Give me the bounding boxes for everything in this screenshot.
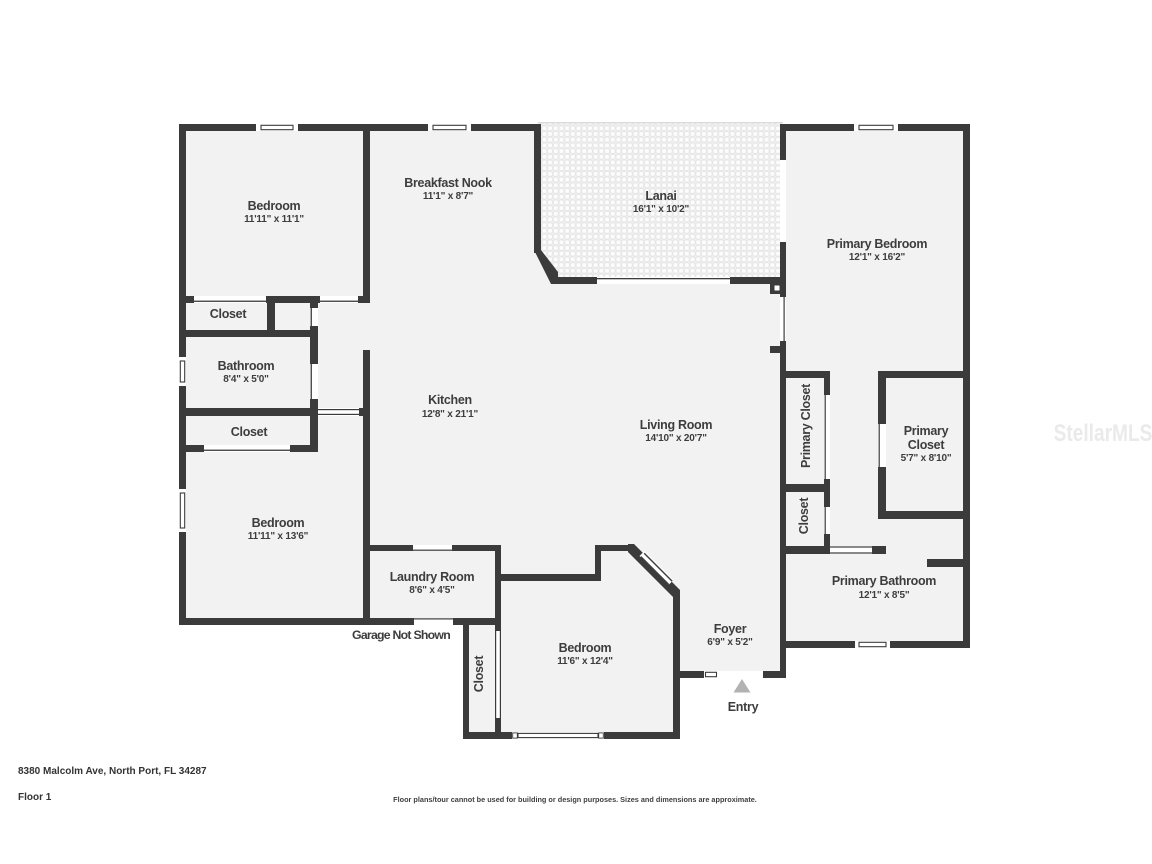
svg-text:Primary Bathroom: Primary Bathroom (832, 574, 936, 588)
svg-text:Kitchen: Kitchen (428, 393, 472, 407)
svg-text:Breakfast Nook: Breakfast Nook (404, 176, 492, 190)
svg-text:16'1" x 10'2": 16'1" x 10'2" (633, 204, 690, 215)
svg-text:11'11" x 11'1": 11'11" x 11'1" (244, 214, 304, 225)
svg-text:Primary Closet: Primary Closet (799, 383, 813, 468)
svg-text:Closet: Closet (210, 307, 248, 321)
svg-text:8'4" x 5'0": 8'4" x 5'0" (223, 374, 269, 385)
svg-text:12'1" x 16'2": 12'1" x 16'2" (849, 252, 906, 263)
svg-text:12'8" x 21'1": 12'8" x 21'1" (422, 409, 479, 420)
svg-text:Entry: Entry (728, 700, 759, 714)
svg-text:8380 Malcolm Ave, North Port,: 8380 Malcolm Ave, North Port, FL 34287 (18, 766, 207, 777)
svg-text:5'7" x 8'10": 5'7" x 8'10" (901, 453, 952, 464)
svg-text:Bedroom: Bedroom (559, 641, 612, 655)
svg-text:StellarMLS: StellarMLS (1054, 419, 1152, 447)
svg-text:Bathroom: Bathroom (218, 359, 275, 373)
svg-text:14'10" x 20'7": 14'10" x 20'7" (645, 433, 707, 444)
svg-text:Floor plans/tour cannot be use: Floor plans/tour cannot be used for buil… (393, 795, 757, 804)
svg-text:11'11" x 13'6": 11'11" x 13'6" (248, 531, 309, 542)
svg-text:11'6" x 12'4": 11'6" x 12'4" (557, 656, 613, 667)
svg-text:Closet: Closet (472, 655, 486, 693)
svg-text:Living Room: Living Room (640, 418, 713, 432)
svg-text:Primary: Primary (904, 424, 949, 438)
svg-text:Closet: Closet (231, 425, 269, 439)
svg-text:8'6" x 4'5": 8'6" x 4'5" (409, 585, 455, 596)
svg-text:Closet: Closet (908, 438, 946, 452)
svg-text:Bedroom: Bedroom (248, 199, 301, 213)
svg-text:6'9" x 5'2": 6'9" x 5'2" (707, 637, 753, 648)
svg-text:Laundry Room: Laundry Room (390, 570, 475, 584)
svg-text:Floor 1: Floor 1 (18, 792, 52, 803)
svg-text:Foyer: Foyer (714, 622, 747, 636)
svg-text:Primary Bedroom: Primary Bedroom (827, 237, 928, 251)
svg-text:Closet: Closet (797, 497, 811, 535)
svg-text:Garage Not Shown: Garage Not Shown (352, 628, 450, 642)
svg-text:11'1" x 8'7": 11'1" x 8'7" (423, 191, 474, 202)
svg-text:12'1" x 8'5": 12'1" x 8'5" (859, 590, 910, 601)
svg-text:Bedroom: Bedroom (252, 516, 305, 530)
svg-text:Lanai: Lanai (645, 189, 676, 203)
